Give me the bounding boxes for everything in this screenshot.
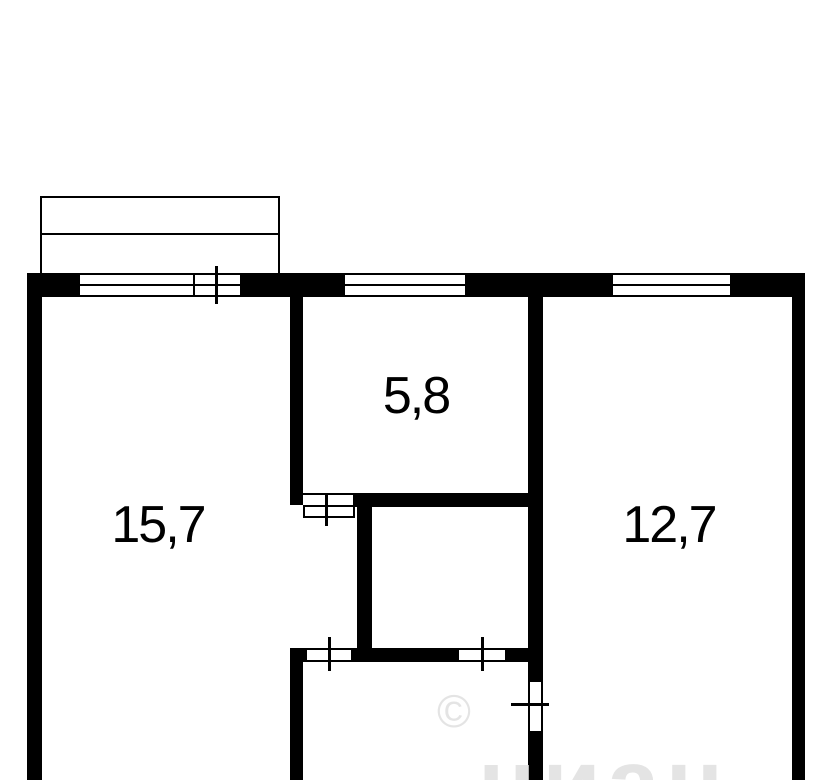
hallway-wall-right-stub (507, 648, 528, 662)
kitchen-left-wall (290, 297, 303, 505)
balcony (40, 196, 280, 275)
living-room-window (80, 275, 193, 295)
watermark-text: циан (478, 736, 729, 780)
left-wall (27, 297, 42, 780)
balcony-door-tick (215, 266, 218, 304)
hallway-wall-left-stub (290, 648, 305, 662)
kitchen-door-lintel (303, 493, 357, 495)
bedroom-area-label: 12,7 (622, 495, 715, 555)
floor-plan: 15,7 5,8 12,7 © циан (0, 0, 834, 780)
kitchen-bottom-wall (353, 493, 528, 507)
bathroom-door-tick (481, 637, 484, 671)
hallway-wall-middle (353, 648, 457, 662)
kitchen-area-label: 5,8 (383, 366, 449, 426)
lower-left-wall (290, 662, 303, 780)
kitchen-door-tick (325, 493, 328, 526)
middle-wall-upper (528, 297, 543, 682)
bedroom-door-opening (528, 682, 543, 731)
hallway-door-tick (328, 637, 331, 671)
right-wall (792, 297, 805, 780)
balcony-rail-line (42, 233, 278, 235)
kitchen-window (345, 275, 465, 295)
kitchen-door-opening (303, 505, 355, 518)
bathroom-left-wall (357, 495, 372, 662)
bedroom-door-tick (511, 703, 549, 706)
copyright-icon: © (437, 688, 471, 734)
living-room-area-label: 15,7 (111, 495, 204, 555)
bedroom-window (613, 275, 730, 295)
